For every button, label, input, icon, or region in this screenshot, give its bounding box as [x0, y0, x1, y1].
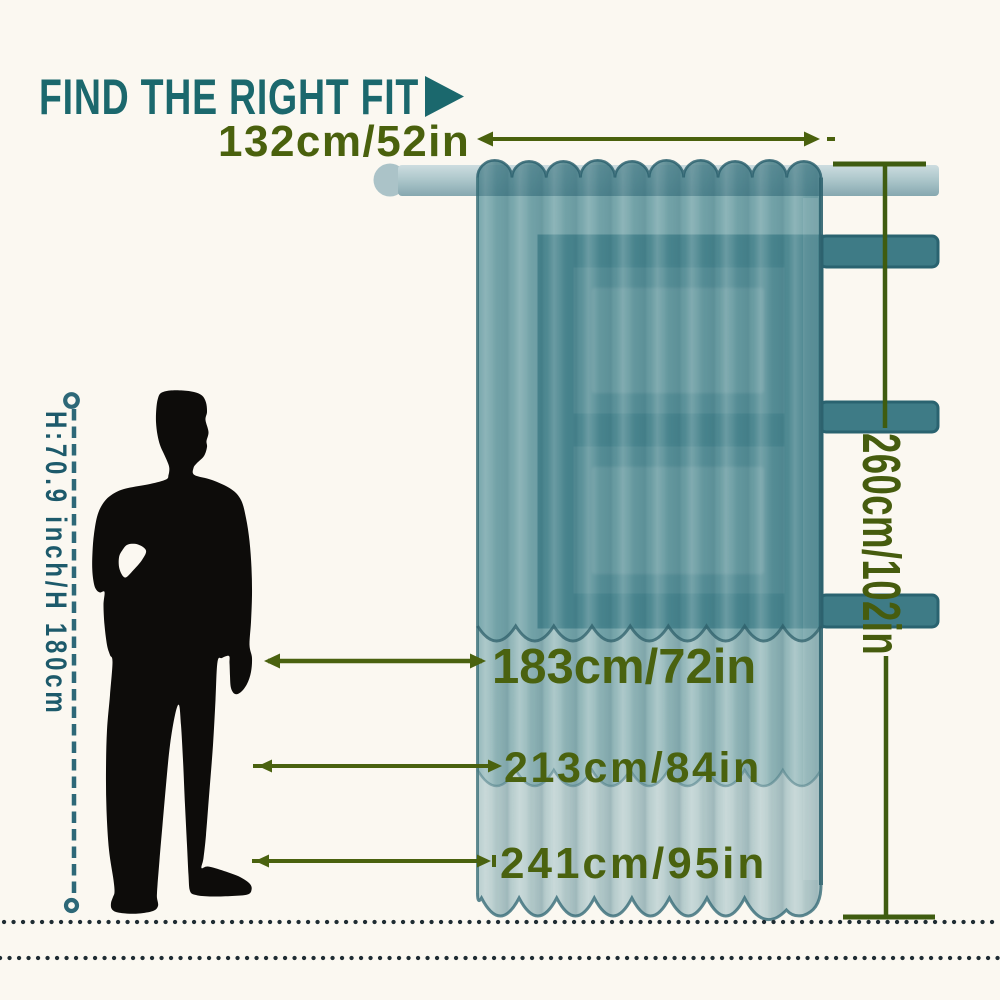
svg-text:183cm/72in: 183cm/72in	[492, 640, 756, 694]
svg-text:H:70.9 inch/H 180cm: H:70.9 inch/H 180cm	[39, 411, 73, 717]
svg-text:260cm/102in: 260cm/102in	[851, 433, 911, 655]
svg-text:213cm/84in: 213cm/84in	[504, 744, 762, 792]
svg-text:241cm/95in: 241cm/95in	[500, 839, 767, 888]
svg-text:132cm/52in: 132cm/52in	[218, 117, 470, 166]
